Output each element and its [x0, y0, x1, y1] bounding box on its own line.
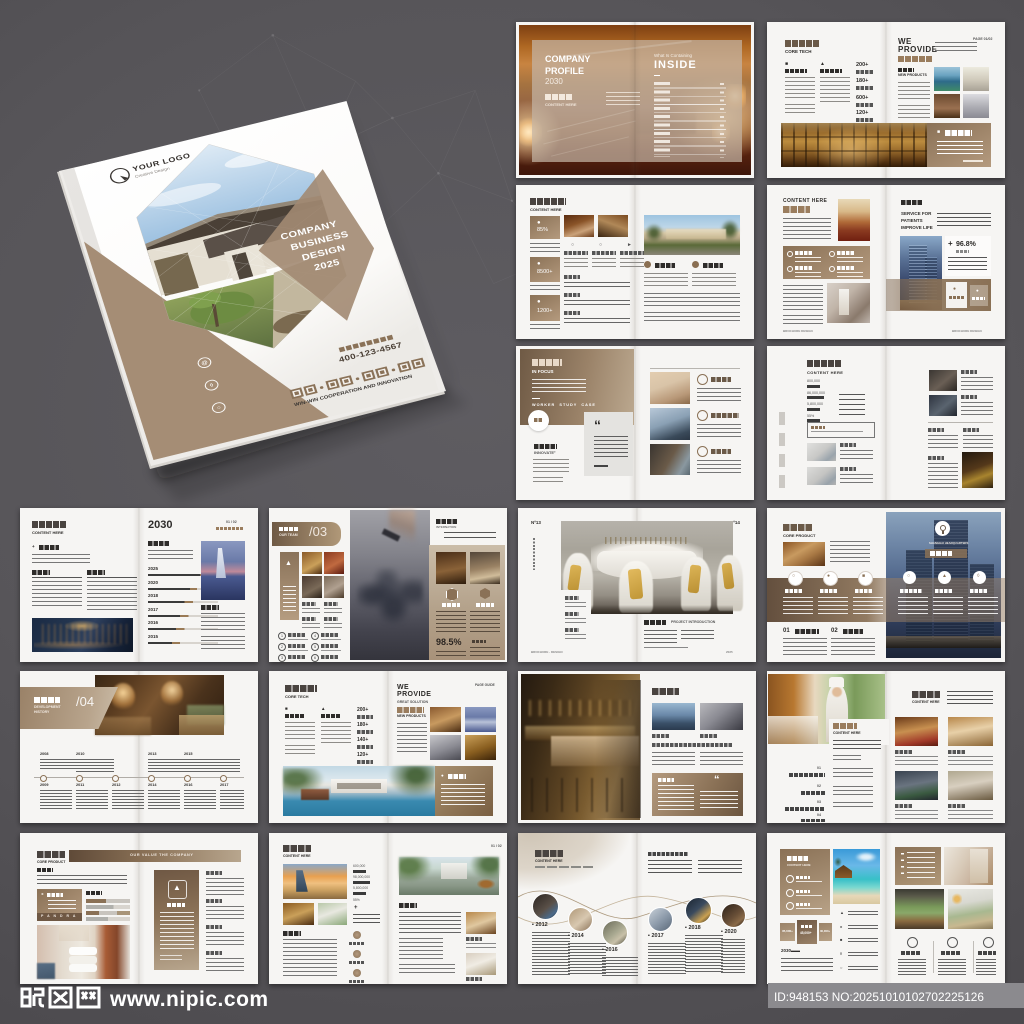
- svg-text:www.nipic.com: www.nipic.com: [109, 988, 269, 1011]
